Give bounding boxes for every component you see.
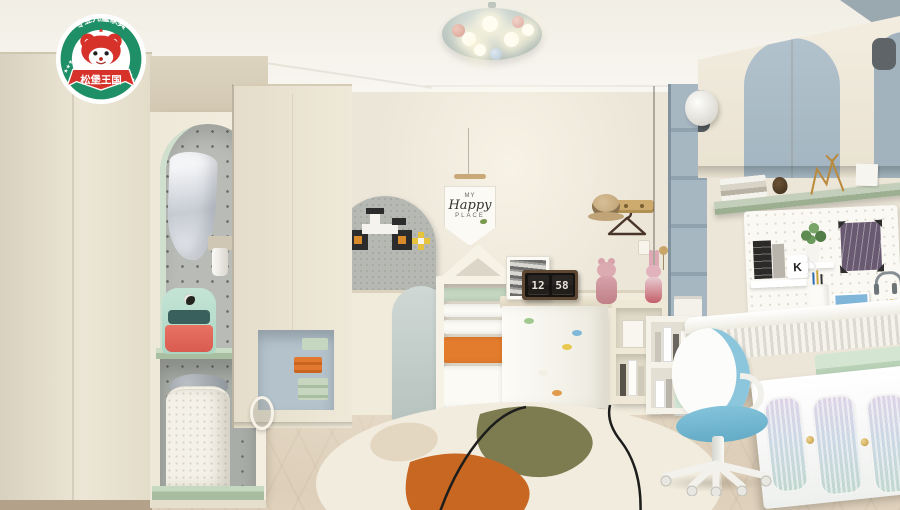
potted-plant-leaves <box>796 218 829 247</box>
mint-backpack <box>162 288 216 354</box>
climb-hold-yellow <box>562 344 572 350</box>
gold-knob <box>860 438 869 447</box>
poster-corner <box>874 219 882 227</box>
laundry-basket <box>166 386 230 492</box>
poster-corner <box>838 221 846 229</box>
flip-clock: 12 58 <box>522 270 578 300</box>
poster-corner <box>876 263 884 271</box>
climb-hold-orange <box>552 390 562 396</box>
wire-deer-decor-icon <box>802 152 854 199</box>
gold-knob <box>806 436 815 445</box>
climb-hold-blue <box>572 330 582 336</box>
balloon-ball <box>659 246 668 255</box>
backpack-bottom <box>165 325 213 352</box>
chair-star-base <box>658 456 774 496</box>
headphone-earcup <box>874 284 879 295</box>
backpack-pocket <box>168 310 210 324</box>
book <box>622 320 644 348</box>
pennant-string <box>468 128 469 176</box>
wardrobe-left <box>0 52 152 510</box>
backpack-logo <box>184 294 195 305</box>
clothes-hanger-icon <box>604 210 650 238</box>
wardrobe-door-seam <box>72 54 74 510</box>
clock-hours: 12 <box>528 275 549 295</box>
pegboard-ledge <box>751 279 807 288</box>
storage-cup <box>212 248 228 276</box>
teddy-bear-figurine <box>594 258 620 304</box>
green-tray-stack <box>298 378 328 400</box>
clock-minutes: 58 <box>552 275 573 295</box>
green-base-shelf <box>152 486 264 500</box>
cabinet-door-seam <box>791 16 793 178</box>
wall-poster <box>840 222 882 272</box>
poster-corner <box>840 265 848 273</box>
hook-knob <box>624 204 628 208</box>
headphone-earcup <box>892 283 897 294</box>
round-wall-speaker <box>685 90 718 126</box>
wardrobe-center <box>232 84 352 428</box>
brand-logo-badge: 专业儿童家具 ★★★ ★★★ 松堡王国 <box>54 12 148 106</box>
climb-hold-green <box>524 318 534 324</box>
wardrobe-plinth <box>0 500 152 510</box>
lamp-pink-ball <box>512 16 524 28</box>
mug-handle <box>806 260 817 274</box>
pixel-flower-icon <box>412 232 430 250</box>
green-tray <box>302 338 328 350</box>
bunny-figurine <box>644 250 668 304</box>
lamp-pink-ball <box>452 24 465 37</box>
climbing-dresser <box>502 306 608 408</box>
fluted-glass-door <box>811 393 865 497</box>
black-book <box>753 240 773 279</box>
cabinet-handle <box>872 38 896 70</box>
pennant-leaf-icon <box>480 219 487 224</box>
round-mirror <box>250 396 274 430</box>
logo-banner-text: 松堡王国 <box>80 73 121 86</box>
lamp-bulb <box>522 24 534 36</box>
bunny-body <box>645 277 662 303</box>
book <box>620 364 626 396</box>
pennant-hanger-bar <box>454 174 486 179</box>
climb-hold-white <box>538 370 548 376</box>
book <box>628 360 637 396</box>
lamp-blue-ball <box>490 48 502 60</box>
pennant-line2: Happy <box>444 199 496 213</box>
lamp-bulb <box>462 32 476 46</box>
fluted-glass-door <box>865 392 900 496</box>
children-room-photo: 专业儿童家具 ★★★ ★★★ 松堡王国 <box>0 0 900 510</box>
ceiling-lamp <box>438 2 548 68</box>
hook-knob <box>640 204 644 208</box>
lamp-bulb <box>482 16 498 32</box>
bear-body <box>596 276 617 304</box>
lamp-bulb <box>474 44 486 56</box>
gray-book <box>772 244 785 278</box>
desk-chair <box>650 324 774 500</box>
card-decor <box>855 163 878 186</box>
pixel-motorcycle-icon <box>348 208 412 250</box>
pinecone-decor <box>772 176 789 194</box>
orange-tray-stack <box>294 357 322 373</box>
pennant-line3: PLACE <box>444 213 496 219</box>
unit-plinth <box>150 500 266 508</box>
lamp-bulb <box>504 32 519 47</box>
flip-clock-face: 12 58 <box>525 273 575 297</box>
balloon-stick <box>663 254 664 270</box>
book <box>638 366 644 396</box>
brand-logo-svg: 专业儿童家具 ★★★ ★★★ 松堡王国 <box>54 12 148 106</box>
